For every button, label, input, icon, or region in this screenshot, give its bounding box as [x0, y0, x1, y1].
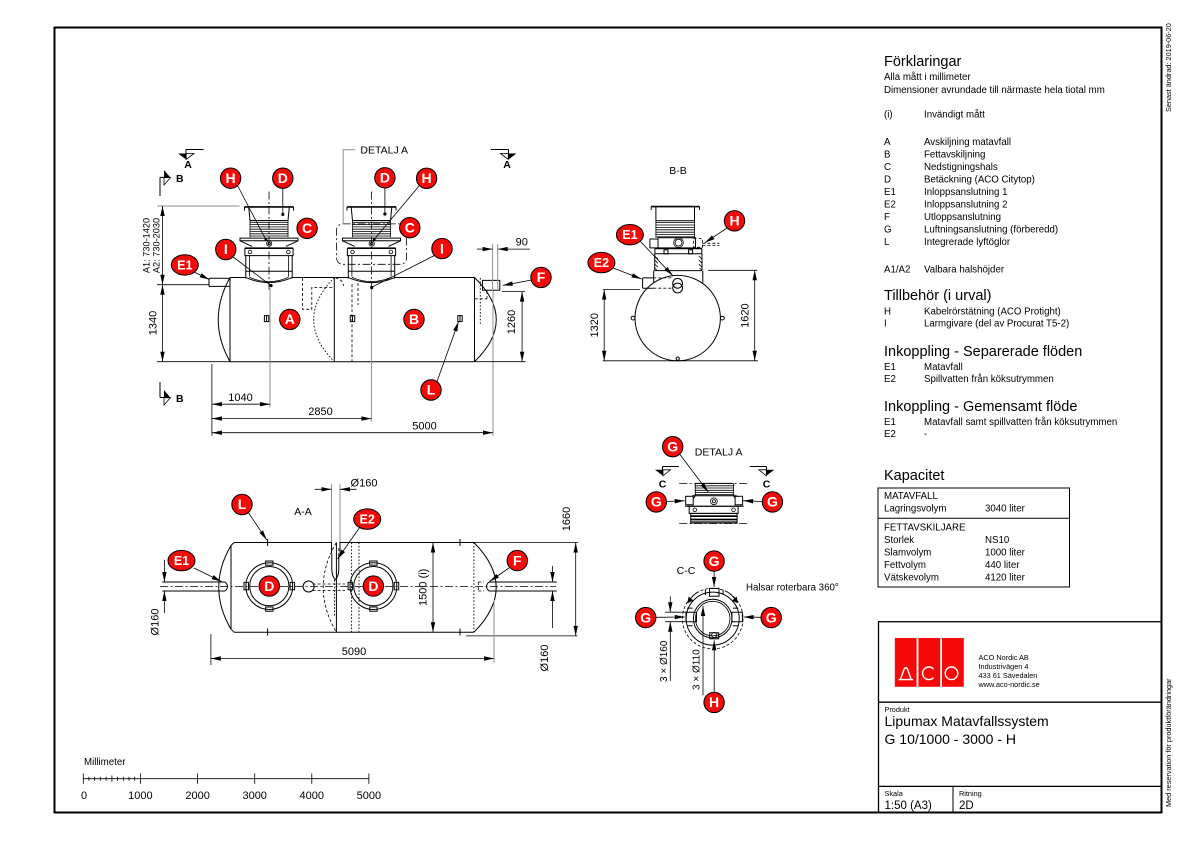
- svg-text:Millimeter: Millimeter: [84, 757, 126, 768]
- svg-text:Ø160: Ø160: [351, 478, 378, 490]
- svg-text:B: B: [176, 173, 184, 185]
- svg-text:Avskiljning matavfall: Avskiljning matavfall: [924, 137, 1011, 148]
- svg-text:Alla mått i millimeter: Alla mått i millimeter: [884, 72, 971, 83]
- svg-text:C: C: [302, 220, 312, 236]
- svg-text:3 × Ø160: 3 × Ø160: [659, 640, 670, 682]
- svg-text:C: C: [405, 219, 415, 235]
- svg-text:G: G: [651, 494, 662, 510]
- svg-text:Inloppsanslutning 1: Inloppsanslutning 1: [924, 187, 1007, 198]
- svg-text:Slamvolym: Slamvolym: [884, 548, 931, 559]
- svg-text:Larmgivare (del av Procurat T5: Larmgivare (del av Procurat T5-2): [924, 319, 1069, 330]
- svg-text:E2: E2: [594, 256, 609, 270]
- svg-text:A: A: [503, 159, 511, 171]
- svg-text:Matavfall: Matavfall: [924, 362, 963, 373]
- svg-text:G 10/1000 - 3000 - H: G 10/1000 - 3000 - H: [885, 731, 1017, 747]
- svg-text:1000: 1000: [128, 790, 152, 802]
- svg-text:C: C: [659, 479, 667, 491]
- svg-text:Vätskevolym: Vätskevolym: [884, 573, 939, 584]
- svg-text:H: H: [422, 170, 432, 186]
- svg-text:D: D: [884, 175, 891, 186]
- svg-text:A2: 730-2030: A2: 730-2030: [152, 218, 162, 273]
- svg-text:1000 liter: 1000 liter: [985, 548, 1026, 559]
- svg-text:E1: E1: [622, 228, 637, 242]
- svg-text:Industrivägen 4: Industrivägen 4: [979, 662, 1029, 671]
- svg-text:B: B: [176, 393, 184, 405]
- svg-text:Ø160: Ø160: [539, 645, 551, 672]
- svg-text:MATAVFALL: MATAVFALL: [884, 491, 938, 502]
- svg-text:3040 liter: 3040 liter: [985, 504, 1026, 515]
- svg-text:Kabelrörstätning (ACO Protight: Kabelrörstätning (ACO Protight): [924, 307, 1061, 318]
- svg-text:H: H: [709, 694, 719, 710]
- svg-text:G: G: [767, 494, 778, 510]
- svg-text:Spillvatten från köksutrymmen: Spillvatten från köksutrymmen: [924, 374, 1054, 385]
- svg-text:440 liter: 440 liter: [985, 560, 1020, 571]
- svg-text:B-B: B-B: [669, 165, 687, 177]
- svg-text:NS10: NS10: [985, 535, 1010, 546]
- svg-text:I: I: [884, 319, 887, 330]
- svg-text:H: H: [226, 170, 236, 186]
- svg-text:Tillbehör (i urval): Tillbehör (i urval): [884, 288, 991, 304]
- svg-text:Skala: Skala: [885, 789, 904, 798]
- svg-text:3000: 3000: [242, 790, 266, 802]
- svg-text:C: C: [884, 162, 891, 173]
- svg-text:D: D: [368, 578, 378, 594]
- svg-text:G: G: [709, 553, 720, 569]
- svg-text:ACO Nordic AB: ACO Nordic AB: [979, 653, 1029, 662]
- svg-text:(i): (i): [884, 110, 893, 121]
- svg-text:E1: E1: [884, 362, 896, 373]
- svg-text:A: A: [285, 311, 295, 327]
- svg-text:L: L: [427, 382, 436, 398]
- svg-text:Utloppsanslutning: Utloppsanslutning: [924, 212, 1001, 223]
- svg-text:E1: E1: [177, 258, 192, 272]
- svg-text:Fettvolym: Fettvolym: [884, 560, 926, 571]
- svg-text:Invändigt mått: Invändigt mått: [924, 110, 985, 121]
- svg-text:E2: E2: [884, 200, 896, 211]
- svg-text:Senast ändrad: 2019-06-20: Senast ändrad: 2019-06-20: [1164, 23, 1173, 112]
- svg-text:Dimensioner avrundade till när: Dimensioner avrundade till närmaste hela…: [884, 85, 1105, 96]
- svg-text:1260: 1260: [506, 310, 518, 334]
- svg-text:B: B: [409, 311, 419, 327]
- svg-text:G: G: [667, 438, 678, 454]
- svg-text:Luftningsanslutning (förberedd: Luftningsanslutning (förberedd): [924, 225, 1058, 236]
- svg-text:I: I: [440, 240, 444, 256]
- svg-text:D: D: [278, 170, 288, 186]
- svg-text:DETALJ A: DETALJ A: [360, 145, 408, 157]
- svg-text:F: F: [513, 552, 522, 568]
- svg-text:DETALJ A: DETALJ A: [695, 447, 743, 459]
- svg-text:C: C: [763, 479, 771, 491]
- svg-text:G: G: [884, 225, 892, 236]
- svg-text:0: 0: [81, 790, 87, 802]
- svg-text:5090: 5090: [342, 646, 366, 658]
- svg-text:A1/A2: A1/A2: [884, 265, 910, 276]
- svg-text:D: D: [264, 578, 274, 594]
- svg-text:F: F: [884, 212, 890, 223]
- svg-text:D: D: [380, 170, 390, 186]
- svg-text:1660: 1660: [561, 507, 573, 531]
- svg-text:H: H: [729, 213, 739, 229]
- svg-text:2D: 2D: [959, 800, 974, 812]
- svg-text:Fettavskiljning: Fettavskiljning: [924, 150, 985, 161]
- svg-text:L: L: [238, 496, 247, 512]
- svg-text:H: H: [884, 307, 891, 318]
- svg-text:90: 90: [516, 236, 528, 248]
- svg-text:C-C: C-C: [677, 565, 696, 577]
- svg-text:E2: E2: [884, 429, 896, 440]
- svg-text:5000: 5000: [357, 790, 381, 802]
- svg-text:E1: E1: [174, 554, 189, 568]
- svg-text:Inkoppling - Separerade flöden: Inkoppling - Separerade flöden: [884, 344, 1082, 360]
- svg-text:Med reservation för produktför: Med reservation för produktförändringar: [1164, 678, 1173, 807]
- svg-text:-: -: [924, 429, 927, 440]
- svg-text:Kapacitet: Kapacitet: [884, 468, 944, 484]
- svg-text:4120 liter: 4120 liter: [985, 573, 1026, 584]
- svg-text:Matavfall samt spillvatten frå: Matavfall samt spillvatten från köksutry…: [924, 417, 1117, 428]
- svg-text:A1: 730-1420: A1: 730-1420: [142, 218, 152, 273]
- svg-text:4000: 4000: [300, 790, 324, 802]
- svg-text:Valbara halshöjder: Valbara halshöjder: [924, 265, 1005, 276]
- svg-text:B: B: [884, 150, 890, 161]
- svg-text:A-A: A-A: [294, 506, 312, 518]
- svg-text:A: A: [184, 159, 192, 171]
- svg-text:E2: E2: [884, 374, 896, 385]
- svg-text:1:50 (A3): 1:50 (A3): [885, 800, 932, 812]
- svg-text:1620: 1620: [740, 303, 752, 327]
- svg-text:1500 (i): 1500 (i): [418, 569, 430, 606]
- svg-text:Inkoppling - Gemensamt flöde: Inkoppling - Gemensamt flöde: [884, 399, 1077, 415]
- svg-text:www.aco-nordic.se: www.aco-nordic.se: [978, 680, 1040, 689]
- svg-text:1320: 1320: [589, 313, 601, 337]
- svg-text:Inloppsanslutning 2: Inloppsanslutning 2: [924, 200, 1007, 211]
- svg-text:2000: 2000: [185, 790, 209, 802]
- svg-text:FETTAVSKILJARE: FETTAVSKILJARE: [884, 523, 966, 534]
- svg-text:Lagringsvolym: Lagringsvolym: [884, 504, 946, 515]
- svg-text:G: G: [766, 609, 777, 625]
- svg-text:2850: 2850: [308, 406, 332, 418]
- svg-text:G: G: [640, 609, 651, 625]
- svg-text:Lipumax Matavfallssystem: Lipumax Matavfallssystem: [885, 713, 1049, 729]
- svg-text:E1: E1: [884, 187, 896, 198]
- svg-text:433 61 Sävedalen: 433 61 Sävedalen: [979, 671, 1038, 680]
- svg-text:F: F: [537, 269, 546, 285]
- svg-text:Betäckning (ACO Citytop): Betäckning (ACO Citytop): [924, 175, 1035, 186]
- svg-text:Förklaringar: Förklaringar: [884, 54, 962, 70]
- svg-text:Halsar roterbara 360°: Halsar roterbara 360°: [746, 583, 839, 594]
- svg-text:1340: 1340: [148, 311, 160, 335]
- svg-text:3 × Ø110: 3 × Ø110: [692, 649, 703, 690]
- svg-text:I: I: [224, 241, 228, 257]
- svg-text:1040: 1040: [228, 392, 252, 404]
- svg-text:5000: 5000: [412, 421, 436, 433]
- svg-text:Storlek: Storlek: [884, 535, 914, 546]
- svg-text:Nedstigningshals: Nedstigningshals: [924, 162, 998, 173]
- svg-text:Ritning: Ritning: [959, 789, 982, 798]
- svg-text:A: A: [884, 137, 891, 148]
- svg-text:L: L: [884, 237, 890, 248]
- svg-text:E2: E2: [360, 513, 375, 527]
- svg-text:E1: E1: [884, 417, 896, 428]
- svg-text:Ø160: Ø160: [149, 609, 161, 636]
- svg-text:Integrerade lyftöglor: Integrerade lyftöglor: [924, 237, 1011, 248]
